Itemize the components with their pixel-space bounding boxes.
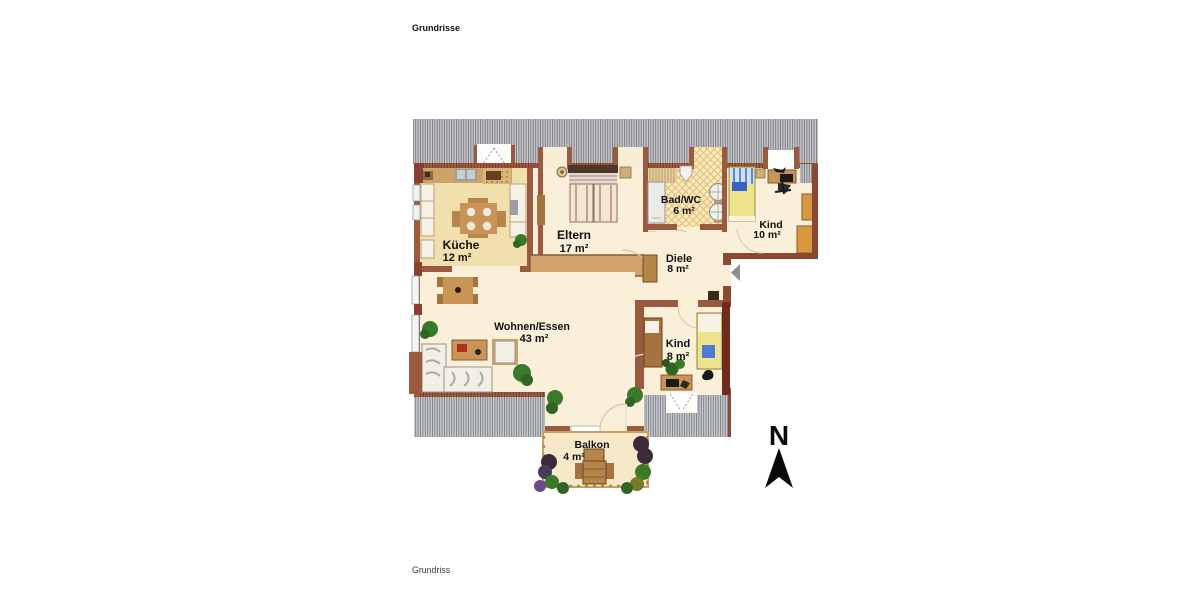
svg-text:8 m²: 8 m²	[667, 263, 689, 275]
svg-text:Balkon: Balkon	[574, 439, 609, 451]
svg-text:Kind: Kind	[666, 338, 690, 350]
svg-text:Grundrisse: Grundrisse	[412, 23, 460, 33]
svg-text:N: N	[769, 420, 789, 451]
svg-text:8 m²: 8 m²	[667, 351, 690, 363]
svg-text:6 m²: 6 m²	[673, 205, 695, 217]
svg-text:4 m²: 4 m²	[563, 451, 585, 463]
svg-text:Grundriss: Grundriss	[412, 565, 451, 575]
svg-text:17 m²: 17 m²	[560, 243, 589, 255]
svg-text:Küche: Küche	[443, 238, 480, 252]
svg-text:12 m²: 12 m²	[443, 252, 472, 264]
svg-text:Eltern: Eltern	[557, 228, 591, 242]
svg-text:43 m²: 43 m²	[520, 333, 549, 345]
svg-text:Wohnen/Essen: Wohnen/Essen	[494, 321, 570, 333]
svg-text:10 m²: 10 m²	[753, 229, 781, 241]
